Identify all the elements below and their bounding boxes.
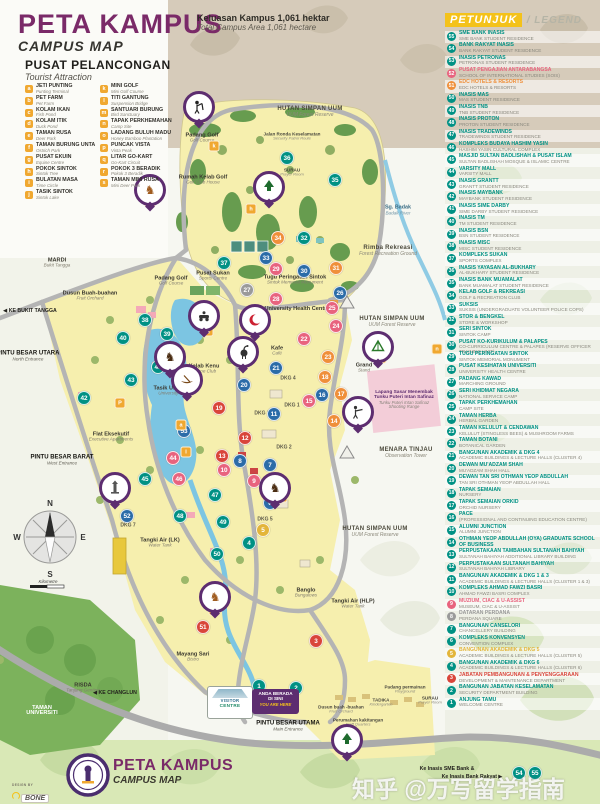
legend-name-en: BANK RAKYAT STUDENT RESIDENCE bbox=[459, 49, 541, 54]
zhihu-watermark: 知乎 @万写留学指南 bbox=[352, 770, 565, 804]
legend-item-2: 2BANGUNAN JABATAN KESELAMATANSECURITY DE… bbox=[445, 685, 600, 697]
legend-item-10: 10KOMPLEKS AHMAD FAWZI BASRIAHMAD FAWZI … bbox=[445, 586, 600, 598]
legend-number-badge: 15 bbox=[447, 526, 456, 535]
legend-item-40: 40INASIS TMTM STUDENT RESIDENCE bbox=[445, 216, 600, 228]
legend-item-28: 28PUSAT KESIHATAN UNIVERSITIUNIVERSITY H… bbox=[445, 364, 600, 376]
campus-area-en: Total Campus Area 1,061 hectare bbox=[197, 23, 377, 32]
attraction-text: KOLAM ITIKDuck Pond bbox=[36, 119, 67, 129]
legend-text: TAMAN BOTANIBOTANICAL GARDEN bbox=[459, 438, 505, 449]
tourist-title: PUSAT PELANCONGAN bbox=[25, 58, 171, 72]
legend-number-badge: 52 bbox=[447, 69, 456, 78]
legend-name-en: SINTOK CAMP bbox=[459, 333, 491, 338]
legend-text: SERI SINTOKSINTOK CAMP bbox=[459, 327, 491, 338]
attraction-item-b: bPET FARMPet Farm bbox=[25, 96, 95, 108]
legend-text: KOMPLEKS BUDAYA HASHIM YASINHASHIM YASIN… bbox=[459, 142, 548, 153]
legend-number-badge: 39 bbox=[447, 230, 456, 239]
attraction-text: TAMAN MINI RUSAMini Deer Park bbox=[111, 178, 159, 188]
attraction-letter-badge: o bbox=[100, 132, 108, 140]
attraction-item-f: fTAMAN BURUNG UNTAOstrich Park bbox=[25, 143, 95, 155]
designer-swirl-icon bbox=[12, 792, 20, 800]
campus-area-my: Keluasan Kampus 1,061 hektar bbox=[197, 13, 377, 23]
attraction-list-col2: kMINI GOLFMini Golf CourselTITI GANTUNGS… bbox=[100, 84, 172, 190]
legend-number-badge: 43 bbox=[447, 180, 456, 189]
legend-text: INASIS TRADEWINDSTRADEWINDS STUDENT RESI… bbox=[459, 130, 541, 141]
legend-name-en: ACADEMIC BUILDINGS & LECTURE HALLS (CLUS… bbox=[459, 666, 582, 671]
legend-text: BANGUNAN AKADEMIK & DKG 1 & 3ACADEMIC BU… bbox=[459, 574, 590, 585]
attraction-letter-badge: s bbox=[100, 179, 108, 187]
legend-name-en: SULTANAH BAHIYAH LIBRARY bbox=[459, 567, 554, 572]
legend-name-en: TAN SRI OTHMAN YEOP ABDULLAH HALL bbox=[459, 481, 568, 486]
attraction-text: TAMAN RUSADeer Park bbox=[36, 131, 71, 141]
attraction-name-en: Sintok Tree bbox=[36, 172, 77, 176]
legend-name-en: GRANTT STUDENT RESIDENCE bbox=[459, 185, 529, 190]
legend-number-badge: 36 bbox=[447, 267, 456, 276]
attraction-letter-badge: b bbox=[25, 97, 33, 105]
legend-text: JABATAN PEMBANGUNAN & PENYENGGARAANDEVEL… bbox=[459, 673, 579, 684]
legend-number-badge: 27 bbox=[447, 378, 456, 387]
legend-text: DEWAN TAN SRI OTHMAN YEOP ABDULLAHTAN SR… bbox=[459, 475, 568, 486]
legend-text: STOR & BENGKELSTORE & WORKSHOP bbox=[459, 315, 508, 326]
legend-item-5: 5BANGUNAN AKADEMIK & DKG 5ACADEMIC BUILD… bbox=[445, 648, 600, 660]
attraction-name-en: Time Circle bbox=[36, 184, 78, 188]
legend-number-badge: 45 bbox=[447, 155, 456, 164]
legend-text: INASIS TNBTNB STUDENT RESIDENCE bbox=[459, 105, 519, 116]
attraction-name-en: Vista Peak bbox=[111, 149, 150, 153]
legend-number-badge: 41 bbox=[447, 205, 456, 214]
legend-name-en: EDC HOTELS & RESORTS bbox=[459, 86, 523, 91]
legend-number-badge: 51 bbox=[447, 81, 456, 90]
legend-number-badge: 33 bbox=[447, 304, 456, 313]
legend-text: BANGUNAN CANSELORICHANCELLERY BUILDING bbox=[459, 624, 520, 635]
attraction-letter-badge: d bbox=[25, 120, 33, 128]
legend-name-en: SIME DARBY STUDENT RESIDENCE bbox=[459, 210, 538, 215]
legend-text: PUSAT PENGAJIAN ANTARABANGSASCHOOL OF IN… bbox=[459, 68, 560, 79]
legend-rows: 55SME BANK INASISSME BANK STUDENT RESIDE… bbox=[445, 31, 600, 710]
legend-item-13: 13PERPUSTAKAAN TAMBAHAN SULTANAH BAHIYAH… bbox=[445, 549, 600, 561]
legend-item-48: 48INASIS PROTONPROTON STUDENT RESIDENCE bbox=[445, 117, 600, 129]
legend-text: KELAB GOLF & REKREASIGOLF & RECREATION C… bbox=[459, 290, 525, 301]
attraction-name-en: Bird Sanctuary bbox=[111, 113, 163, 117]
legend-name-en: PROTON STUDENT RESIDENCE bbox=[459, 123, 530, 128]
legend-number-badge: 5 bbox=[447, 649, 456, 658]
attraction-text: POKOK SINTOKSintok Tree bbox=[36, 167, 77, 177]
attraction-text: PUSAT EKUINEquine Centre bbox=[36, 155, 72, 165]
legend-number-badge: 42 bbox=[447, 192, 456, 201]
legend-name-en: SPORTS COMPLEX bbox=[459, 259, 507, 264]
legend-number-badge: 20 bbox=[447, 464, 456, 473]
legend-number-badge: 38 bbox=[447, 242, 456, 251]
legend-text: INASIS PROTONPROTON STUDENT RESIDENCE bbox=[459, 117, 530, 128]
legend-number-badge: 32 bbox=[447, 316, 456, 325]
legend-title-en: / LEGEND bbox=[527, 15, 582, 26]
legend-number-badge: 22 bbox=[447, 439, 456, 448]
legend-text: INASIS MISCMISC STUDENT RESIDENCE bbox=[459, 241, 521, 252]
attraction-item-q: qLITAR GO-KARTGo-Kart Circuit bbox=[100, 155, 172, 167]
legend-text: PADANG KAWADMARCHING GROUND bbox=[459, 377, 506, 388]
legend-text: INASIS MAYBANKMAYBANK STUDENT RESIDENCE bbox=[459, 191, 532, 202]
legend-item-31: 31SERI SINTOKSINTOK CAMP bbox=[445, 327, 600, 339]
legend-text: KOMPLEKS AHMAD FAWZI BASRIAHMAD FAWZI BA… bbox=[459, 586, 542, 597]
legend-number-badge: 18 bbox=[447, 489, 456, 498]
legend-text: TAPAK PERKHEMAHANCAMP SITE bbox=[459, 401, 517, 412]
legend-number-badge: 34 bbox=[447, 291, 456, 300]
attraction-text: TAMAN BURUNG UNTAOstrich Park bbox=[36, 143, 95, 153]
legend-text: MASJID SULTAN BADLISHAH & PUSAT ISLAMSUL… bbox=[459, 154, 572, 165]
legend-name-en: ACADEMIC BUILDINGS & LECTURE HALLS (CLUS… bbox=[459, 654, 582, 659]
campus-map-poster: N S W E Kilometre PETA KAMPUS CAMPUS MAP… bbox=[0, 0, 600, 810]
attraction-name-en: Suspension Bridge bbox=[111, 102, 149, 106]
legend-text: DATARAN PERDANAPERDANA SQUARE bbox=[459, 611, 510, 622]
legend-name-en: UNIVERSITY HEALTH CENTRE bbox=[459, 370, 536, 375]
legend-name-en: HASHIM YASIN CULTURAL COMPLEX bbox=[459, 148, 548, 153]
attraction-text: KOLAM IKANFish Pond bbox=[36, 108, 70, 118]
attraction-letter-badge: e bbox=[25, 132, 33, 140]
legend-number-badge: 35 bbox=[447, 279, 456, 288]
attraction-item-s: sTAMAN MINI RUSAMini Deer Park bbox=[100, 178, 172, 190]
legend-name-en: CONVENTION COMPLEX bbox=[459, 642, 525, 647]
tourist-attraction-header: PUSAT PELANCONGAN Tourist Attraction bbox=[25, 58, 171, 82]
attraction-name-en: Sintok Lake bbox=[36, 196, 73, 200]
attraction-letter-badge: n bbox=[100, 120, 108, 128]
legend-text: INASIS MASMAS STUDENT RESIDENCE bbox=[459, 93, 520, 104]
legend-text: TUGU PERINGATAN SINTOKSINTOK MEMORIAL MO… bbox=[459, 352, 530, 363]
attraction-name-en: Duck Pond bbox=[36, 125, 67, 129]
legend-number-badge: 46 bbox=[447, 143, 456, 152]
legend-item-54: 54BANK RAKYAT INASISBANK RAKYAT STUDENT … bbox=[445, 43, 600, 55]
legend-name-en: WELCOME CENTRE bbox=[459, 703, 503, 708]
legend-text: INASIS BANK MUAMALATBANK MUAMALAT STUDEN… bbox=[459, 278, 549, 289]
legend-text: KOMPLEKS KONVENSYENCONVENTION COMPLEX bbox=[459, 636, 525, 647]
designer-brand: BONE bbox=[21, 794, 49, 803]
legend-name-en: AL-BUKHARY STUDENT RESIDENCE bbox=[459, 271, 539, 276]
legend-name-en: (PROFESSIONAL AND CONTINUING EDUCATION C… bbox=[459, 518, 587, 523]
legend-text: PERPUSTAKAAN TAMBAHAN SULTANAH BAHIYAHSU… bbox=[459, 549, 584, 560]
legend-number-badge: 13 bbox=[447, 550, 456, 559]
legend-name-en: MU'ADZAM SHAH HALL bbox=[459, 469, 523, 474]
legend-number-badge: 11 bbox=[447, 575, 456, 584]
attraction-name-en: Deer Park bbox=[36, 137, 71, 141]
legend-text: TAPAK SEMAIAN ORKIDORCHID NURSERY bbox=[459, 500, 519, 511]
legend-name-en: MISC STUDENT RESIDENCE bbox=[459, 247, 521, 252]
legend-number-badge: 54 bbox=[447, 44, 456, 53]
legend-text: SUKSISSUKSIS (UNDERGRADUATE VOLUNTEER PO… bbox=[459, 303, 583, 314]
legend-item-19: 19DEWAN TAN SRI OTHMAN YEOP ABDULLAHTAN … bbox=[445, 475, 600, 487]
attraction-text: TAPAK PERKHEMAHANCamp Site bbox=[111, 119, 172, 129]
legend-text: INASIS YAYASAN AL-BUKHARYAL-BUKHARY STUD… bbox=[459, 266, 539, 277]
legend-text: INASIS GRANTTGRANTT STUDENT RESIDENCE bbox=[459, 179, 529, 190]
legend-text: INASIS PETRONASPETRONAS STUDENT RESIDENC… bbox=[459, 56, 535, 67]
legend-number-badge: 14 bbox=[447, 538, 456, 547]
legend-number-badge: 37 bbox=[447, 254, 456, 263]
legend-number-badge: 8 bbox=[447, 612, 456, 621]
attraction-name-en: Camp Site bbox=[111, 125, 172, 129]
legend-text: INASIS TMTM STUDENT RESIDENCE bbox=[459, 216, 517, 227]
svg-text:N: N bbox=[47, 499, 53, 508]
legend-name-en: KELULUT (STINGLESS BEES) & MUSHROOM FARM… bbox=[459, 432, 574, 437]
legend-number-badge: 6 bbox=[447, 637, 456, 646]
legend-number-badge: 17 bbox=[447, 501, 456, 510]
campus-area-box: Keluasan Kampus 1,061 hektar Total Campu… bbox=[197, 13, 377, 32]
legend-text: PERPUSTAKAAN SULTANAH BAHIYAHSULTANAH BA… bbox=[459, 562, 554, 573]
legend-name-en: PETRONAS STUDENT RESIDENCE bbox=[459, 61, 535, 66]
attraction-text: POKOK 3 BERADIKPokok 3 Beradik bbox=[111, 167, 160, 177]
legend-item-7: 7BANGUNAN CANSELORICHANCELLERY BUILDING bbox=[445, 624, 600, 636]
attraction-name-en: Punting Terminal bbox=[36, 90, 73, 94]
legend-number-badge: 30 bbox=[447, 341, 456, 350]
legend-text: TAMAN KELULUT & CENDAWANKELULUT (STINGLE… bbox=[459, 426, 574, 437]
attraction-name-en: Ostrich Park bbox=[36, 149, 95, 153]
svg-text:W: W bbox=[13, 533, 21, 542]
legend-name-en: NATIONAL SERVICE CAMP bbox=[459, 395, 519, 400]
legend-text: DEWAN MU'ADZAM SHAHMU'ADZAM SHAH HALL bbox=[459, 463, 523, 474]
legend-name-en: AHMAD FAWZI BASRI COMPLEX bbox=[459, 592, 542, 597]
legend-name-en: TRADEWINDS STUDENT RESIDENCE bbox=[459, 135, 541, 140]
legend-title: PETUNJUK bbox=[445, 13, 522, 27]
legend-name-en: HERBAL GARDEN bbox=[459, 419, 498, 424]
legend-number-badge: 10 bbox=[447, 587, 456, 596]
legend-number-badge: 28 bbox=[447, 365, 456, 374]
attraction-letter-badge: f bbox=[25, 144, 33, 152]
legend-name-en: STORE & WORKSHOP bbox=[459, 321, 508, 326]
legend-text: SERI KHIDMAT NEGARANATIONAL SERVICE CAMP bbox=[459, 389, 519, 400]
legend-name-en: MARCHING GROUND bbox=[459, 382, 506, 387]
legend-number-badge: 24 bbox=[447, 415, 456, 424]
legend-number-badge: 1 bbox=[447, 699, 456, 708]
legend-name-en: SULTAN BADLISHAH MOSQUE & ISLAMIC CENTRE bbox=[459, 160, 572, 165]
attraction-text: LITAR GO-KARTGo-Kart Circuit bbox=[111, 155, 152, 165]
legend-name-en: CHANCELLERY BUILDING bbox=[459, 629, 520, 634]
legend-text: EDC HOTELS & RESORTSEDC HOTELS & RESORTS bbox=[459, 80, 523, 91]
legend-number-badge: 16 bbox=[447, 513, 456, 522]
legend-number-badge: 49 bbox=[447, 106, 456, 115]
legend-number-badge: 40 bbox=[447, 217, 456, 226]
legend-name-en: SCHOOL OF INTERNATIONAL STUDIES (SOIS) bbox=[459, 74, 560, 79]
legend-item-45: 45MASJID SULTAN BADLISHAH & PUSAT ISLAMS… bbox=[445, 154, 600, 166]
legend-number-badge: 53 bbox=[447, 57, 456, 66]
you-are-here-line3: YOU ARE HERE bbox=[252, 702, 299, 707]
attraction-item-j: jTASIK SINTOKSintok Lake bbox=[25, 190, 95, 202]
legend-name: OTHMAN YEOP ABDULLAH (OYA) GRADUATE SCHO… bbox=[459, 537, 600, 548]
page-subtitle: CAMPUS MAP bbox=[18, 38, 223, 54]
legend-number-badge: 50 bbox=[447, 94, 456, 103]
legend-item-51: 51EDC HOTELS & RESORTSEDC HOTELS & RESOR… bbox=[445, 80, 600, 92]
attraction-name-en: Equine Centre bbox=[36, 161, 72, 165]
footer-title-block: PETA KAMPUS CAMPUS MAP bbox=[113, 758, 233, 786]
legend-item-37: 37KOMPLEKS SUKANSPORTS COMPLEX bbox=[445, 253, 600, 265]
legend-number-badge: 29 bbox=[447, 353, 456, 362]
legend-text: ALUMNI JUNCTIONALUMNI JUNCTION bbox=[459, 525, 506, 536]
legend-name-en: GOLF & RECREATION CLUB bbox=[459, 296, 525, 301]
legend-number-badge: 44 bbox=[447, 168, 456, 177]
legend-text: OTHMAN YEOP ABDULLAH (OYA) GRADUATE SCHO… bbox=[459, 537, 600, 548]
attraction-letter-badge: h bbox=[25, 168, 33, 176]
attraction-text: BULATAN MASATime Circle bbox=[36, 178, 78, 188]
svg-text:Kilometre: Kilometre bbox=[38, 579, 58, 584]
you-are-here-box: ANDA BERADA DI SINI YOU ARE HERE bbox=[252, 689, 299, 714]
attraction-text: SANTUARI BURUNGBird Sanctuary bbox=[111, 108, 163, 118]
legend-name-en: SUKSIS (UNDERGRADUATE VOLUNTEER POLICE C… bbox=[459, 308, 583, 313]
legend-text: BANK RAKYAT INASISBANK RAKYAT STUDENT RE… bbox=[459, 43, 541, 54]
legend-number-badge: 3 bbox=[447, 674, 456, 683]
legend-item-1: 1ANJUNG TAMUWELCOME CENTRE bbox=[445, 698, 600, 710]
courts bbox=[231, 241, 268, 252]
legend-text: TAMAN HERBAHERBAL GARDEN bbox=[459, 414, 498, 425]
legend-item-8: 8DATARAN PERDANAPERDANA SQUARE bbox=[445, 611, 600, 623]
legend-name-en: ACADEMIC BUILDINGS & LECTURE HALLS (CLUS… bbox=[459, 456, 582, 461]
legend-name-en: NURSERY bbox=[459, 493, 501, 498]
legend-name-en: SULTANAH BAHIYAH ADDITIONAL LIBRARY BUIL… bbox=[459, 555, 584, 560]
legend-name-en: BANK MUAMALAT STUDENT RESIDENCE bbox=[459, 284, 549, 289]
legend-name-en: SME BANK STUDENT RESIDENCE bbox=[459, 37, 534, 42]
attraction-text: TASIK SINTOKSintok Lake bbox=[36, 190, 73, 200]
attraction-text: LADANG BULUH MADUHoney Bamboo Plantation bbox=[111, 131, 171, 141]
legend-name-en: SINTOK MEMORIAL MONUMENT bbox=[459, 358, 530, 363]
legend-name-en: MUSEUM, CIAC & U-ASSIST bbox=[459, 605, 525, 610]
designer-logo: DESIGN BY BONE bbox=[12, 783, 49, 805]
attraction-letter-badge: r bbox=[100, 168, 108, 176]
legend-text: KOMPLEKS SUKANSPORTS COMPLEX bbox=[459, 253, 507, 264]
legend-number-badge: 21 bbox=[447, 452, 456, 461]
legend-item-34: 34KELAB GOLF & REKREASIGOLF & RECREATION… bbox=[445, 290, 600, 302]
tourist-subtitle: Tourist Attraction bbox=[25, 72, 171, 82]
legend-text: BANGUNAN JABATAN KESELAMATANSECURITY DEP… bbox=[459, 685, 553, 696]
attraction-text: MINI GOLFMini Golf Course bbox=[111, 84, 144, 94]
legend-number-badge: 7 bbox=[447, 625, 456, 634]
legend-name-en: ACADEMIC BUILDINGS & LECTURE HALLS (CLUS… bbox=[459, 580, 590, 585]
legend-name-en: MAYBANK STUDENT RESIDENCE bbox=[459, 197, 532, 202]
attraction-name-en: Mini Golf Course bbox=[111, 90, 144, 94]
legend-name-en: TM STUDENT RESIDENCE bbox=[459, 222, 517, 227]
visitor-centre-line2: CENTRE bbox=[208, 703, 252, 708]
attraction-item-p: pPUNCAK VISTAVista Peak bbox=[100, 143, 172, 155]
legend-text: VARSITY MALLVARSITY MALL bbox=[459, 167, 496, 178]
attraction-name-en: Pet Farm bbox=[36, 102, 63, 106]
legend-text: BANGUNAN AKADEMIK & DKG 6ACADEMIC BUILDI… bbox=[459, 661, 582, 672]
attraction-letter-badge: i bbox=[25, 179, 33, 187]
legend-text: BANGUNAN AKADEMIK & DKG 4ACADEMIC BUILDI… bbox=[459, 451, 582, 462]
legend-number-badge: 55 bbox=[447, 32, 456, 41]
legend-number-badge: 9 bbox=[447, 600, 456, 609]
legend-name-en: BOTANICAL GARDEN bbox=[459, 444, 505, 449]
legend-header: PETUNJUK / LEGEND bbox=[445, 10, 600, 28]
attraction-letter-badge: g bbox=[25, 156, 33, 164]
attraction-letter-badge: j bbox=[25, 191, 33, 199]
legend-name-en: BSN STUDENT RESIDENCE bbox=[459, 234, 519, 239]
page-title: PETA KAMPUS bbox=[18, 10, 223, 38]
attraction-item-l: lTITI GANTUNGSuspension Bridge bbox=[100, 96, 172, 108]
attraction-letter-badge: c bbox=[25, 109, 33, 117]
legend-number-badge: 48 bbox=[447, 118, 456, 127]
legend-item-16: 16PACE(PROFESSIONAL AND CONTINUING EDUCA… bbox=[445, 512, 600, 524]
legend-number-badge: 31 bbox=[447, 328, 456, 337]
map-legend: PETUNJUK / LEGEND 55SME BANK INASISSME B… bbox=[445, 10, 600, 710]
design-by-label: DESIGN BY bbox=[12, 783, 49, 787]
svg-text:E: E bbox=[80, 533, 86, 542]
legend-text: PUSAT KESIHATAN UNIVERSITIUNIVERSITY HEA… bbox=[459, 364, 536, 375]
legend-text: INASIS BSNBSN STUDENT RESIDENCE bbox=[459, 229, 519, 240]
legend-text: TAPAK SEMAIANNURSERY bbox=[459, 488, 501, 499]
bottom-white-strip bbox=[0, 804, 600, 810]
legend-number-badge: 26 bbox=[447, 390, 456, 399]
attraction-item-g: gPUSAT EKUINEquine Centre bbox=[25, 155, 95, 167]
footer-subtitle: CAMPUS MAP bbox=[113, 775, 233, 786]
visitor-centre-roof bbox=[212, 689, 248, 698]
attraction-list-col1: aJETI PUNTINGPunting TerminalbPET FARMPe… bbox=[25, 84, 95, 202]
visitor-centre-sign: VISITOR CENTRE bbox=[207, 686, 253, 719]
legend-number-badge: 23 bbox=[447, 427, 456, 436]
legend-number-badge: 4 bbox=[447, 662, 456, 671]
legend-number-badge: 2 bbox=[447, 686, 456, 695]
attraction-text: PUNCAK VISTAVista Peak bbox=[111, 143, 150, 153]
legend-text: INASIS SIME DARBYSIME DARBY STUDENT RESI… bbox=[459, 204, 538, 215]
legend-name-en: PERDANA SQUARE bbox=[459, 617, 510, 622]
legend-item-22: 22TAMAN BOTANIBOTANICAL GARDEN bbox=[445, 438, 600, 450]
legend-name-en: DEVELOPMENT & MAINTENANCE DEPARTMENT bbox=[459, 679, 579, 684]
legend-name-en: MAS STUDENT RESIDENCE bbox=[459, 98, 520, 103]
attraction-letter-badge: l bbox=[100, 97, 108, 105]
attraction-letter-badge: q bbox=[100, 156, 108, 164]
uum-crest bbox=[65, 752, 111, 798]
legend-name-en: VARSITY MALL bbox=[459, 172, 496, 177]
attraction-text: TITI GANTUNGSuspension Bridge bbox=[111, 96, 149, 106]
legend-item-25: 25TAPAK PERKHEMAHANCAMP SITE bbox=[445, 401, 600, 413]
footer-title: PETA KAMPUS bbox=[113, 758, 233, 775]
attraction-letter-badge: m bbox=[100, 109, 108, 117]
attraction-text: PET FARMPet Farm bbox=[36, 96, 63, 106]
attraction-name-en: Fish Pond bbox=[36, 113, 70, 117]
legend-item-42: 42INASIS MAYBANKMAYBANK STUDENT RESIDENC… bbox=[445, 191, 600, 203]
legend-text: ANJUNG TAMUWELCOME CENTRE bbox=[459, 698, 503, 709]
legend-item-39: 39INASIS BSNBSN STUDENT RESIDENCE bbox=[445, 229, 600, 241]
legend-name-en: TNB STUDENT RESIDENCE bbox=[459, 111, 519, 116]
attraction-letter-badge: k bbox=[100, 85, 108, 93]
legend-name-en: ORCHID NURSERY bbox=[459, 506, 519, 511]
legend-name-en: CAMP SITE bbox=[459, 407, 517, 412]
legend-text: SME BANK INASISSME BANK STUDENT RESIDENC… bbox=[459, 31, 534, 42]
attraction-name-en: Honey Bamboo Plantation bbox=[111, 137, 171, 141]
page-header: PETA KAMPUS CAMPUS MAP bbox=[18, 10, 223, 54]
legend-number-badge: 25 bbox=[447, 402, 456, 411]
attraction-text: JETI PUNTINGPunting Terminal bbox=[36, 84, 73, 94]
attraction-letter-badge: p bbox=[100, 144, 108, 152]
legend-number-badge: 47 bbox=[447, 131, 456, 140]
attraction-name-en: Pokok 3 Beradik bbox=[111, 172, 160, 176]
legend-text: PACE(PROFESSIONAL AND CONTINUING EDUCATI… bbox=[459, 512, 587, 523]
legend-number-badge: 12 bbox=[447, 563, 456, 572]
svg-text:S: S bbox=[47, 570, 53, 579]
attraction-name-en: Mini Deer Park bbox=[111, 184, 159, 188]
attraction-name-en: Go-Kart Circuit bbox=[111, 161, 152, 165]
legend-number-badge: 19 bbox=[447, 476, 456, 485]
legend-text: MUZIUM, CIAC & U-ASSISTMUSEUM, CIAC & U-… bbox=[459, 599, 525, 610]
legend-name-en: ALUMNI JUNCTION bbox=[459, 530, 506, 535]
attraction-letter-badge: a bbox=[25, 85, 33, 93]
legend-name-en: SECURITY DEPARTMENT BUILDING bbox=[459, 691, 553, 696]
legend-text: BANGUNAN AKADEMIK & DKG 5ACADEMIC BUILDI… bbox=[459, 648, 582, 659]
